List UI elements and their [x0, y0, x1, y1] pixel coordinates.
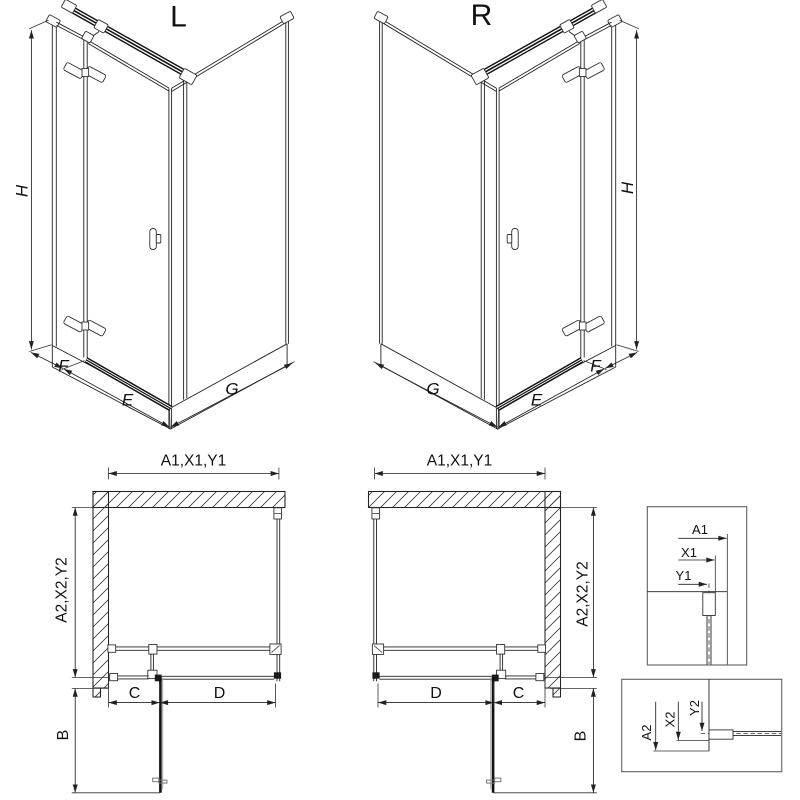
detail-box-top: A1 X1 Y1 — [647, 507, 746, 665]
wall-tab — [553, 688, 561, 697]
detail-label-y2: Y2 — [687, 700, 702, 716]
detail-label-a1: A1 — [692, 522, 708, 537]
detail-label-a2: A2 — [639, 725, 654, 741]
dim-label-c-left: C — [129, 685, 141, 702]
dim-label-side-right: G — [426, 379, 439, 398]
glass-profile-section — [703, 593, 716, 616]
technical-drawing-page: L H F E G R H F E G — [0, 0, 800, 800]
variant-title-right: R — [471, 0, 493, 32]
detail-label-x1: X1 — [681, 545, 697, 560]
shower-enclosure-drawing: L H F E G R H F E G — [0, 0, 800, 800]
detail-box-bottom: A2 X2 Y2 — [622, 679, 782, 771]
dim-label-width-right: A1,X1,Y1 — [427, 452, 493, 469]
dim-label-c-right: C — [513, 685, 525, 702]
wall-tab — [93, 688, 101, 697]
dim-label-fixed-left: F — [58, 356, 70, 375]
wall-top-hatched — [369, 492, 561, 508]
dim-label-b-right: B — [573, 731, 590, 742]
dim-label-d-left: D — [214, 685, 226, 702]
iso-view-left: L H F E G — [12, 0, 294, 430]
dim-label-fixed-right: F — [590, 356, 602, 375]
wall-side-hatched — [545, 492, 561, 689]
dim-label-side-left: G — [225, 379, 238, 398]
iso-view-right: R H F E G — [374, 0, 639, 430]
detail-label-x2: X2 — [663, 712, 678, 728]
dim-label-height-left: H — [12, 184, 31, 197]
plan-right-dimensions — [375, 468, 597, 793]
variant-title-left: L — [170, 1, 187, 34]
dim-label-width-left: A1,X1,Y1 — [161, 452, 227, 469]
detail-label-y1: Y1 — [676, 568, 692, 583]
dim-label-depth-left: A2,X2,Y2 — [53, 557, 70, 623]
dim-label-b-left: B — [55, 730, 72, 741]
dim-label-d-right: D — [430, 685, 442, 702]
wall-side-hatched — [93, 492, 109, 689]
dim-label-door-right: E — [531, 390, 543, 409]
dim-label-door-left: E — [122, 390, 134, 409]
wall-top-hatched — [93, 492, 285, 508]
plan-view-right: A1,X1,Y1 A2,X2,Y2 D C B — [369, 452, 597, 792]
dim-label-depth-right: A2,X2,Y2 — [574, 561, 591, 627]
plan-view-left: A1,X1,Y1 A2,X2,Y2 C D B — [53, 452, 285, 792]
dim-label-height-right: H — [618, 181, 637, 194]
glass-profile-section — [709, 730, 733, 739]
